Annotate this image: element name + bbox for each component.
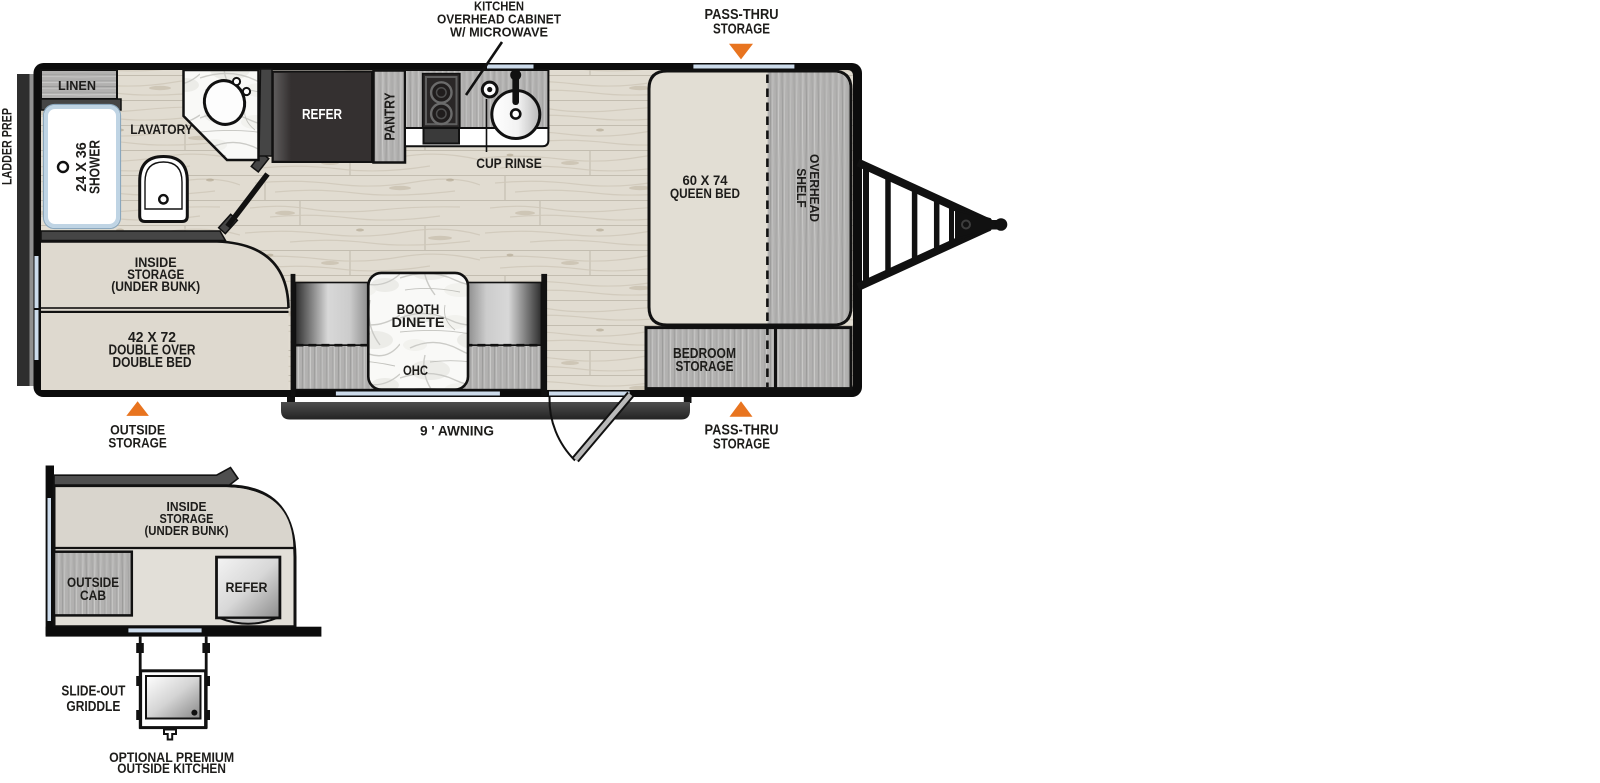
svg-text:GRIDDLE: GRIDDLE — [66, 699, 120, 715]
svg-text:LADDER PREP: LADDER PREP — [0, 108, 15, 185]
svg-text:SHELF: SHELF — [794, 168, 809, 208]
svg-text:STORAGE: STORAGE — [676, 358, 734, 375]
svg-text:OUTSIDE KITCHEN: OUTSIDE KITCHEN — [117, 761, 226, 776]
svg-text:OVERHEAD CABINET: OVERHEAD CABINET — [437, 13, 561, 27]
svg-text:DINETE: DINETE — [392, 314, 445, 330]
svg-text:LAVATORY: LAVATORY — [130, 122, 193, 137]
svg-text:9 ' AWNING: 9 ' AWNING — [420, 424, 494, 439]
svg-text:KITCHEN: KITCHEN — [474, 0, 524, 14]
svg-text:CUP RINSE: CUP RINSE — [476, 155, 542, 171]
svg-text:CAB: CAB — [80, 588, 106, 603]
svg-text:LINEN: LINEN — [58, 79, 96, 93]
svg-text:(UNDER BUNK): (UNDER BUNK) — [145, 523, 229, 538]
svg-text:STORAGE: STORAGE — [713, 21, 770, 38]
svg-text:OHC: OHC — [403, 363, 428, 378]
svg-text:STORAGE: STORAGE — [108, 435, 167, 451]
svg-text:DOUBLE BED: DOUBLE BED — [113, 355, 192, 371]
svg-text:W/ MICROWAVE: W/ MICROWAVE — [450, 26, 548, 40]
svg-text:PANTRY: PANTRY — [383, 92, 399, 140]
svg-text:STORAGE: STORAGE — [713, 436, 770, 453]
svg-text:REFER: REFER — [226, 580, 268, 595]
svg-text:REFER: REFER — [302, 107, 342, 123]
svg-text:SHOWER: SHOWER — [87, 140, 104, 194]
svg-text:QUEEN BED: QUEEN BED — [670, 186, 740, 201]
svg-text:(UNDER BUNK): (UNDER BUNK) — [111, 279, 200, 294]
svg-text:SLIDE-OUT: SLIDE-OUT — [61, 684, 125, 700]
